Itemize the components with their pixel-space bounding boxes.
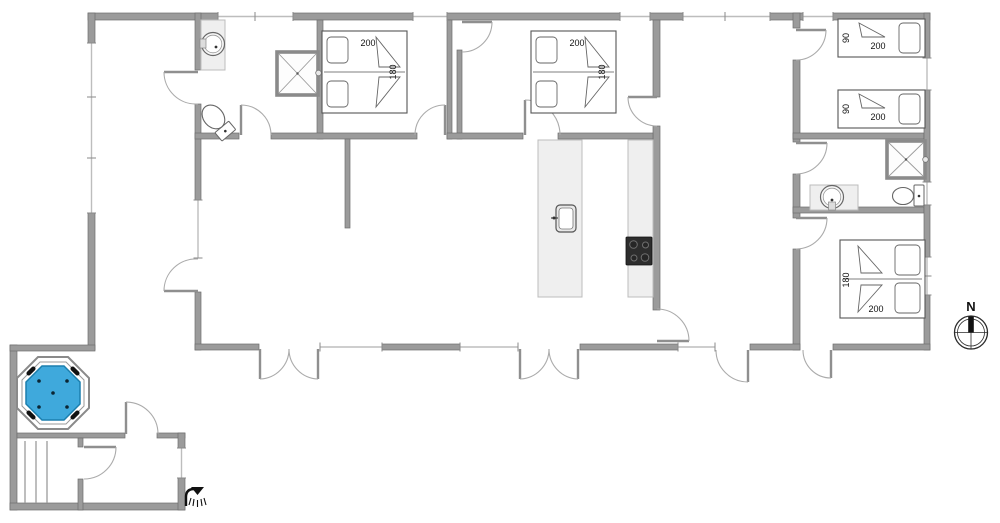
double-door-west <box>260 349 318 379</box>
door-bedroom4-exterior <box>803 350 831 378</box>
toilet-icon <box>893 185 925 206</box>
compass-needle <box>968 317 974 333</box>
door-bathroom2 <box>796 143 827 174</box>
bed-width-label: 180 <box>841 272 851 287</box>
stove-icon <box>626 237 652 265</box>
kitchen-counter <box>628 140 653 297</box>
outdoor-shower-icon <box>186 487 206 507</box>
door-terrace-living <box>164 259 198 291</box>
compass-north-label: N <box>966 299 975 314</box>
double-door-east <box>520 349 578 379</box>
annex-steps <box>25 441 47 503</box>
door-annex-room <box>84 447 116 479</box>
bed-length-label: 200 <box>360 38 375 48</box>
double-bed-bedroom2: 200 180 <box>531 31 616 113</box>
floor-plan-page: 200 180 200 180 90 200 90 200 180 200 <box>0 0 1000 523</box>
door-bedroom4 <box>796 218 827 249</box>
hot-tub <box>17 357 89 429</box>
door-kitchen <box>657 309 689 341</box>
bed-length-label: 200 <box>870 112 885 122</box>
bed-width-label: 180 <box>388 64 398 79</box>
door-bedroom1 <box>415 105 445 135</box>
bed-width-label: 90 <box>841 104 851 114</box>
kitchen <box>538 140 653 297</box>
floor-plan-svg: 200 180 200 180 90 200 90 200 180 200 <box>0 0 1000 523</box>
bed-width-label: 90 <box>841 33 851 43</box>
door-bedroom2-corridor <box>628 97 657 126</box>
door-bathroom1 <box>241 105 271 135</box>
door-corridor-exterior <box>716 350 748 382</box>
bed-width-label: 180 <box>597 64 607 79</box>
bathroom2 <box>810 141 928 210</box>
bed-length-label: 200 <box>569 38 584 48</box>
bathroom1 <box>197 20 321 142</box>
door-annex-entry <box>126 402 158 434</box>
door-terrace-bathroom <box>164 72 198 104</box>
shower-icon <box>887 141 928 178</box>
compass-rose: N <box>955 299 988 349</box>
bed-length-label: 200 <box>868 304 883 314</box>
double-bed-bedroom4: 180 200 <box>840 240 925 318</box>
walls <box>10 13 930 510</box>
door-singles-bedroom <box>796 30 826 60</box>
windows <box>87 12 932 478</box>
single-bed-top: 90 200 <box>838 19 925 57</box>
door-bedroom2-north <box>462 22 492 52</box>
single-bed-bottom: 90 200 <box>838 90 925 128</box>
bed-length-label: 200 <box>870 41 885 51</box>
shower-icon <box>277 52 321 95</box>
double-bed-bedroom1: 200 180 <box>322 31 407 113</box>
